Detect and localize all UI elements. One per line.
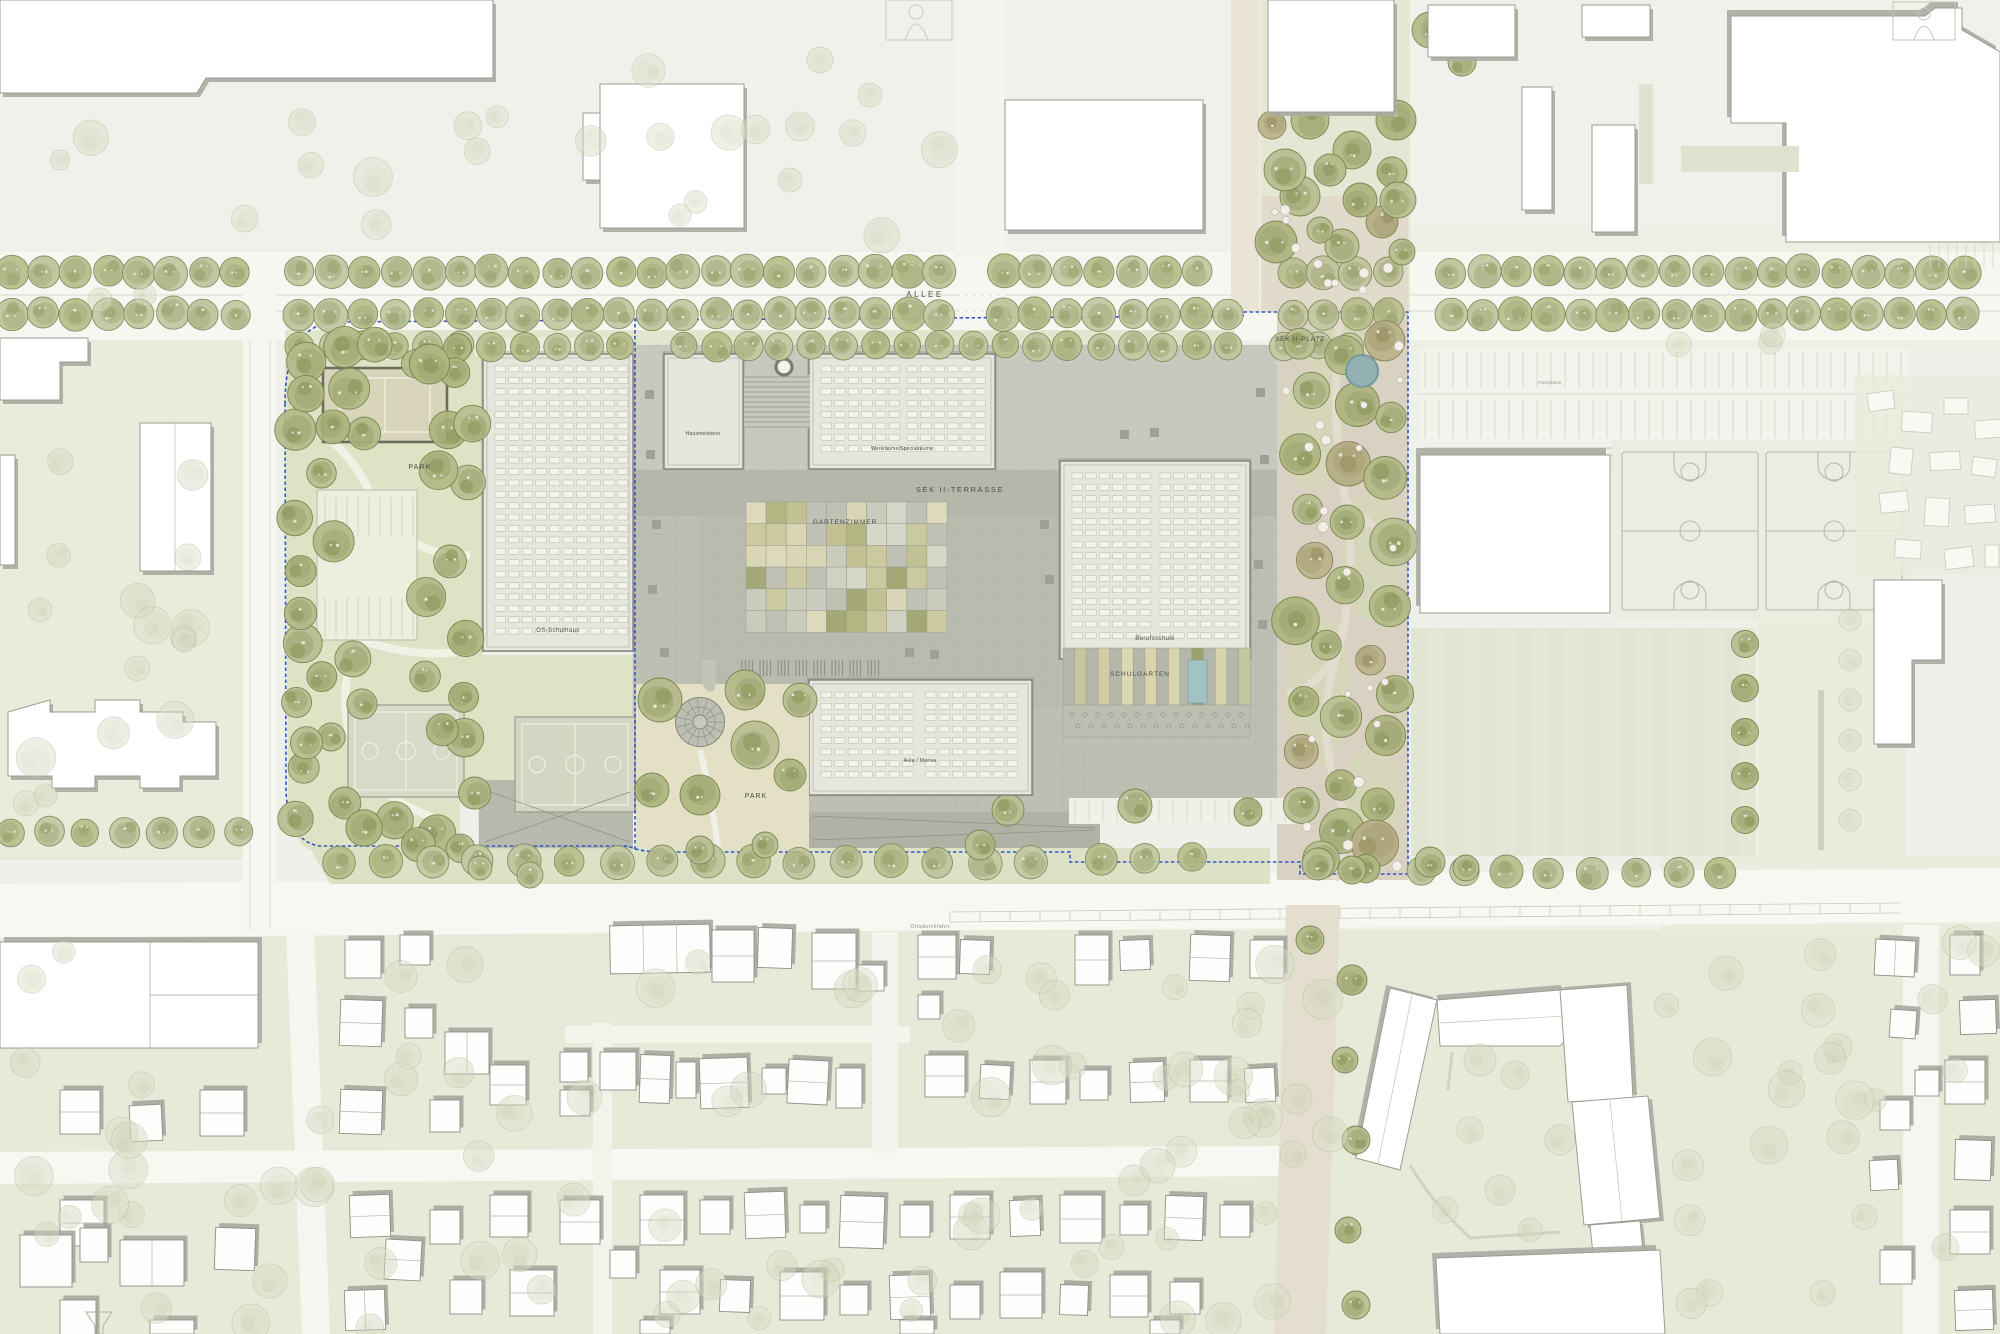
svg-text:SEK II-PLATZ: SEK II-PLATZ	[1275, 336, 1325, 343]
svg-text:GARTENZIMMER: GARTENZIMMER	[813, 519, 878, 526]
svg-text:Hausmeisterei: Hausmeisterei	[686, 431, 721, 437]
svg-text:PARK: PARK	[745, 793, 768, 800]
svg-text:Aula / Mensa: Aula / Mensa	[904, 758, 937, 764]
svg-text:SCHULGARTEN: SCHULGARTEN	[1110, 671, 1170, 678]
svg-text:Berufsschule: Berufsschule	[1135, 636, 1175, 642]
svg-text:OS-Schulhaus: OS-Schulhaus	[536, 628, 580, 634]
svg-text:SEK II-TERRASSE: SEK II-TERRASSE	[916, 485, 1004, 494]
svg-text:PARK: PARK	[408, 464, 431, 471]
svg-text:Werkräume/Spezialräume: Werkräume/Spezialräume	[871, 446, 933, 452]
svg-text:Ortsdurchfahrt: Ortsdurchfahrt	[911, 924, 950, 930]
svg-text:Parkplätze: Parkplätze	[1538, 380, 1562, 385]
svg-text:ALLEE: ALLEE	[906, 290, 943, 299]
